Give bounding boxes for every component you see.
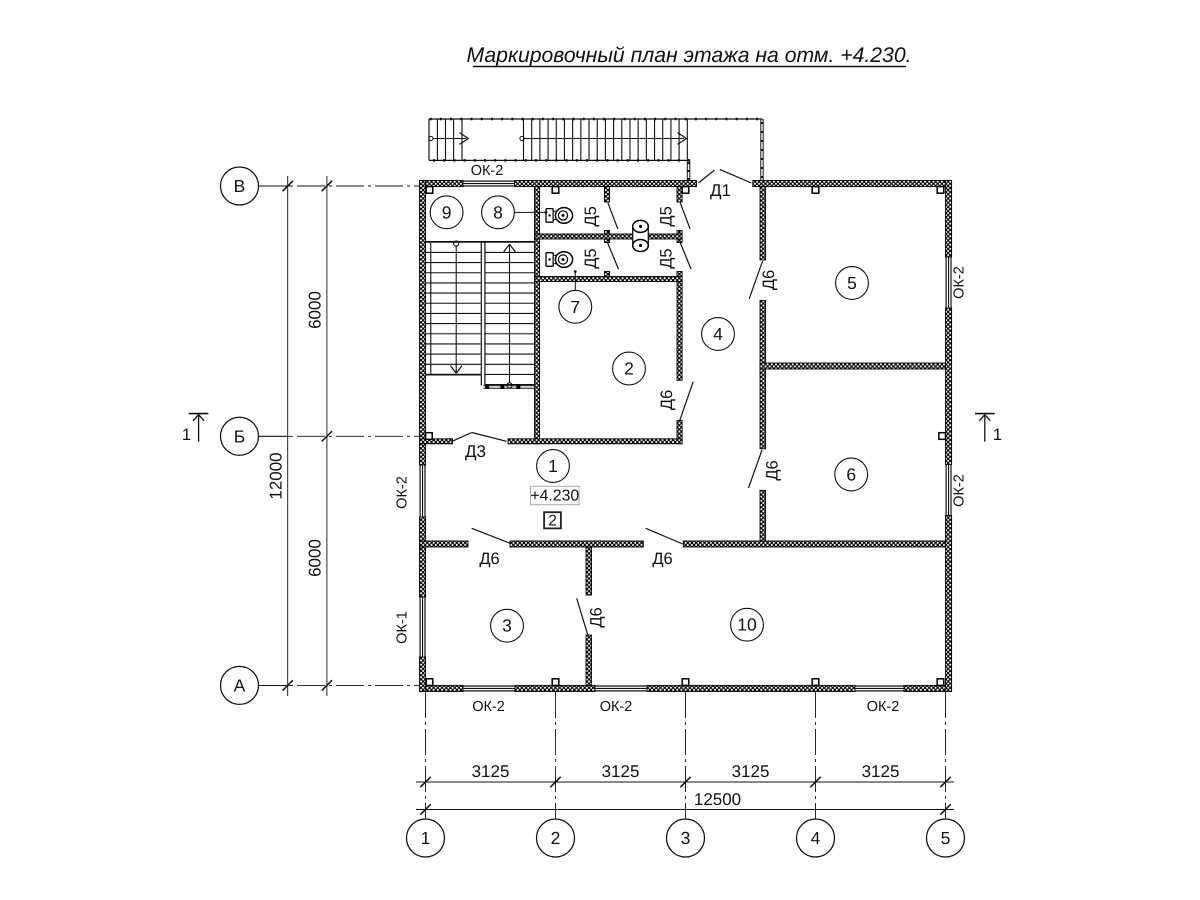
svg-text:4: 4 (713, 324, 723, 344)
svg-text:Д1: Д1 (710, 181, 731, 200)
svg-text:Д6: Д6 (652, 550, 672, 568)
svg-text:7: 7 (570, 297, 580, 317)
svg-text:6: 6 (846, 465, 856, 485)
svg-text:2: 2 (624, 359, 634, 379)
svg-text:ОК-2: ОК-2 (952, 474, 968, 507)
svg-text:3: 3 (502, 616, 512, 636)
svg-text:Д5: Д5 (658, 248, 676, 268)
svg-text:Д3: Д3 (465, 442, 486, 461)
svg-text:3: 3 (681, 828, 691, 848)
svg-text:Д6: Д6 (588, 607, 606, 627)
svg-text:Д6: Д6 (760, 270, 778, 290)
svg-text:12000: 12000 (267, 452, 286, 499)
svg-text:Маркировочный план этажа на от: Маркировочный план этажа на отм. +4.230. (466, 44, 911, 67)
svg-text:1: 1 (421, 828, 431, 848)
svg-text:Д5: Д5 (658, 206, 676, 226)
svg-text:Д6: Д6 (658, 390, 676, 410)
svg-text:6000: 6000 (306, 539, 325, 577)
svg-text:3125: 3125 (472, 762, 510, 781)
svg-text:ОК-2: ОК-2 (600, 699, 633, 715)
svg-text:2: 2 (548, 512, 557, 529)
svg-text:3125: 3125 (732, 762, 770, 781)
svg-text:10: 10 (737, 615, 757, 635)
svg-text:1: 1 (993, 426, 1002, 444)
svg-text:ОК-2: ОК-2 (952, 266, 968, 299)
svg-text:+4.230: +4.230 (530, 487, 579, 504)
svg-text:5: 5 (941, 828, 951, 848)
svg-text:4: 4 (811, 828, 821, 848)
svg-text:В: В (234, 176, 246, 196)
svg-text:2: 2 (551, 828, 561, 848)
svg-text:ОК-2: ОК-2 (472, 699, 505, 715)
svg-text:5: 5 (847, 273, 857, 293)
svg-text:1: 1 (182, 426, 191, 444)
svg-text:А: А (234, 675, 246, 695)
svg-text:Д5: Д5 (582, 206, 600, 226)
svg-text:9: 9 (442, 202, 452, 222)
svg-text:Д5: Д5 (582, 248, 600, 268)
svg-text:ОК-2: ОК-2 (471, 163, 504, 179)
svg-text:3125: 3125 (602, 762, 640, 781)
svg-text:Д6: Д6 (479, 550, 499, 568)
svg-text:3125: 3125 (862, 762, 900, 781)
svg-text:ОК-1: ОК-1 (395, 611, 411, 644)
svg-text:ОК-2: ОК-2 (867, 699, 900, 715)
svg-text:ОК-2: ОК-2 (395, 476, 411, 509)
svg-text:6000: 6000 (306, 291, 325, 329)
svg-text:Б: Б (234, 426, 245, 446)
svg-text:8: 8 (493, 202, 503, 222)
svg-text:Д6: Д6 (764, 460, 782, 480)
svg-text:1: 1 (548, 456, 558, 476)
svg-text:12500: 12500 (694, 790, 741, 809)
